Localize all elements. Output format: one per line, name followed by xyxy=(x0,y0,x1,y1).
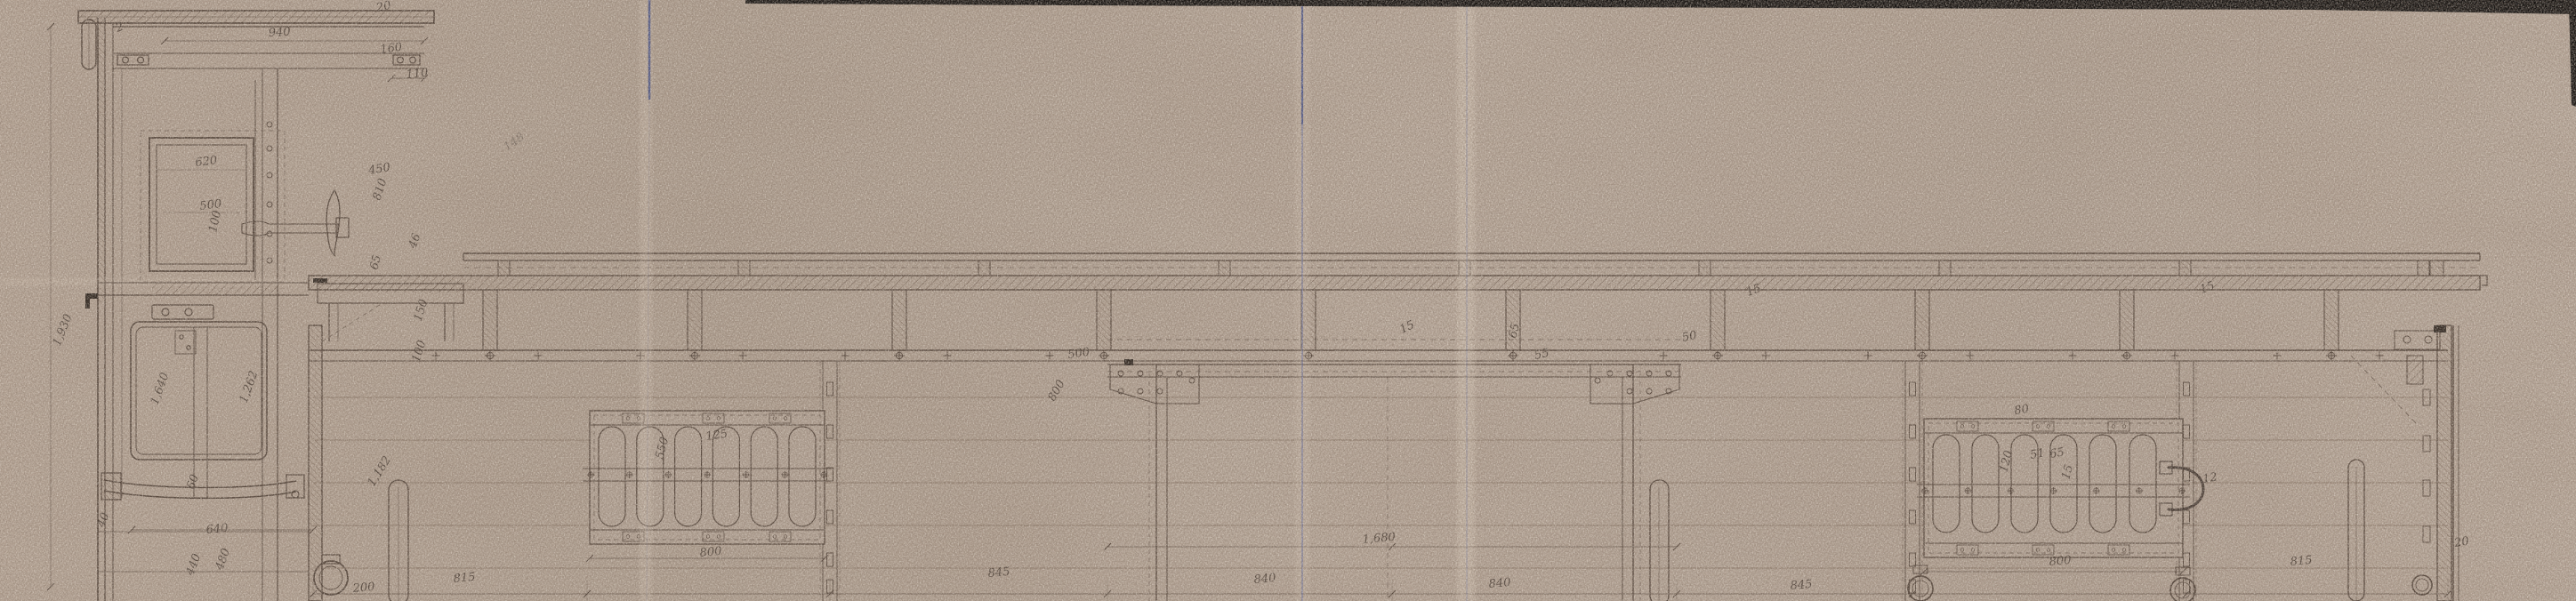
drawing-canvas: 9402021601106205001004508106546150100148… xyxy=(0,0,2576,601)
blueprint-scan: 9402021601106205001004508106546150100148… xyxy=(0,0,2576,601)
paper-grain-light xyxy=(0,0,2576,601)
